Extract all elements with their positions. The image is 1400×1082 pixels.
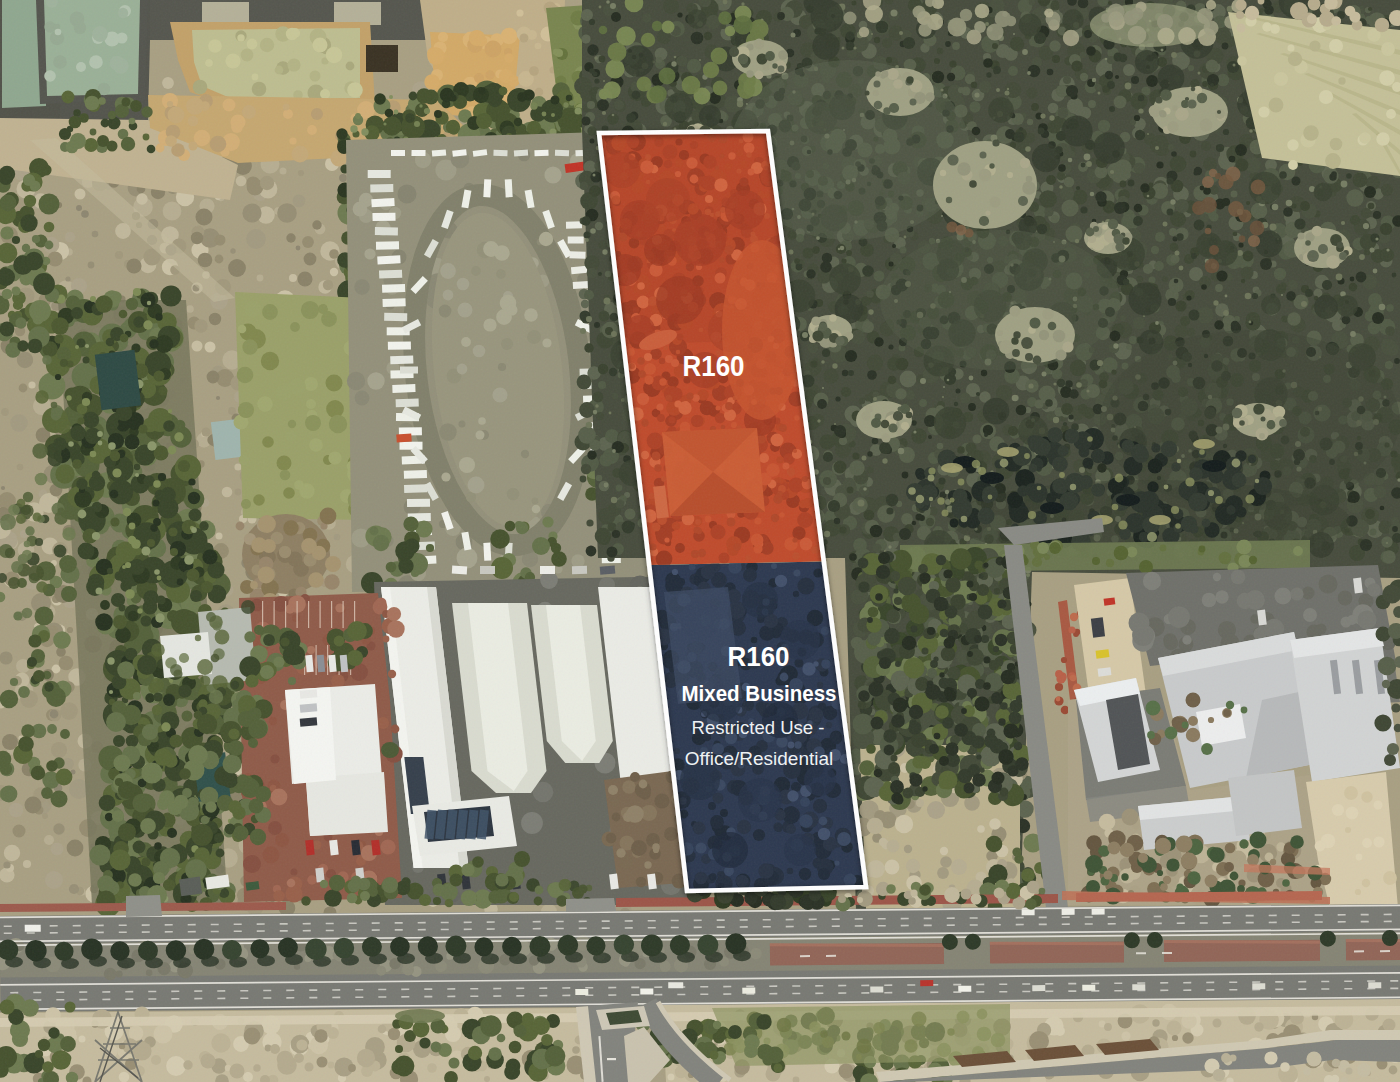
svg-text:Restricted Use -: Restricted Use - [692, 718, 825, 738]
svg-text:Office/Residential: Office/Residential [685, 748, 834, 769]
svg-text:R160: R160 [728, 640, 790, 672]
svg-text:Mixed Business: Mixed Business [682, 681, 837, 706]
svg-text:R160: R160 [683, 349, 745, 382]
